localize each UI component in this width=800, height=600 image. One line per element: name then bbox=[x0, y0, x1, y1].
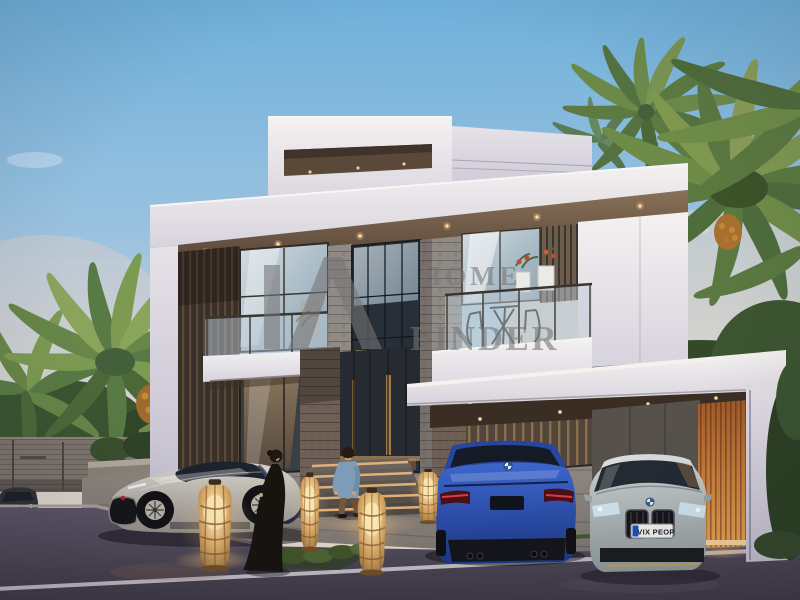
vignette bbox=[0, 0, 800, 600]
villa-photo: VIX PEOP HOME FINDER bbox=[0, 0, 800, 600]
scene-svg: VIX PEOP bbox=[0, 0, 800, 600]
